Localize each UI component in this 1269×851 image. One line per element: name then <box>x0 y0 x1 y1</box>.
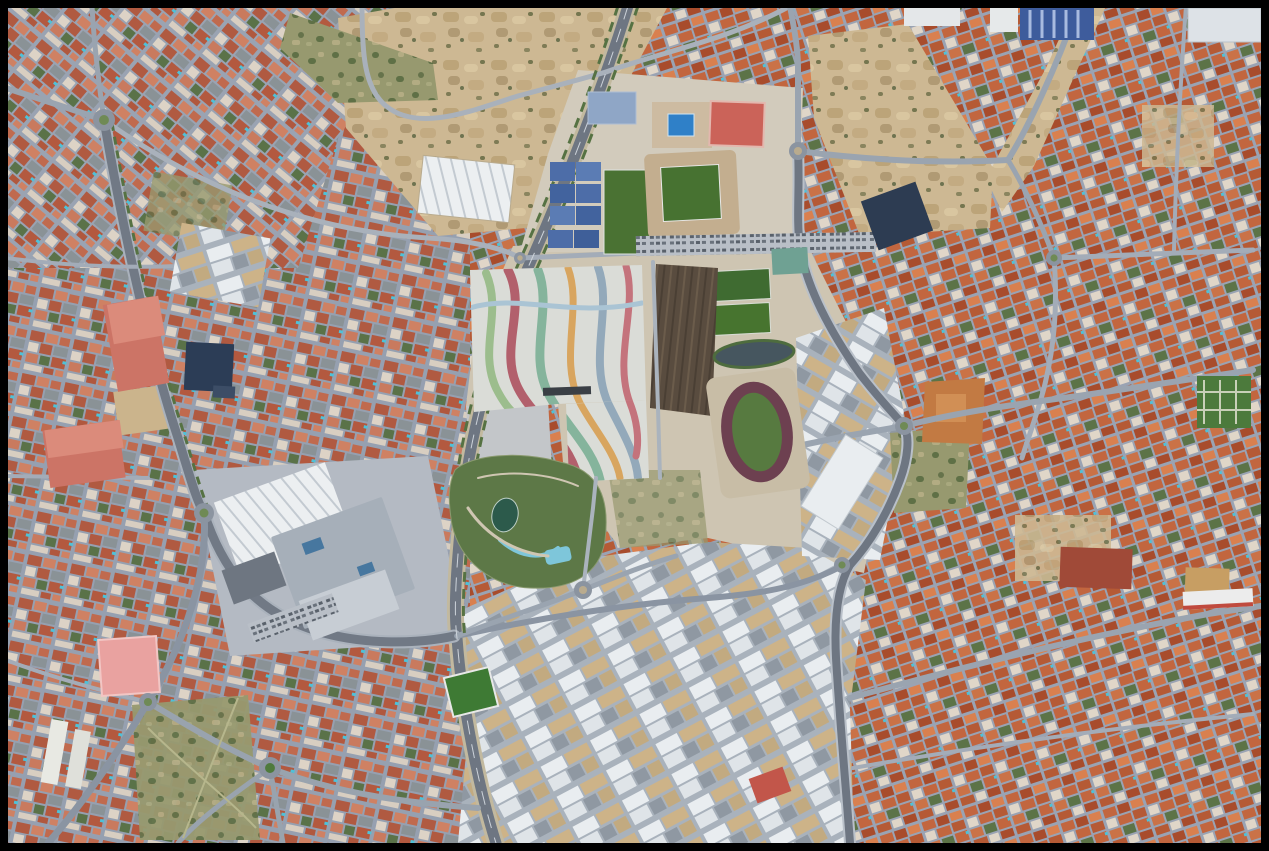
roundabout-plaza-corner-island <box>517 255 522 260</box>
roundabout-mall-island <box>200 509 209 518</box>
roundabout-southwest-green-island <box>265 763 275 773</box>
garden-park-east <box>1197 376 1251 428</box>
white-building-north <box>990 8 1018 32</box>
navy-building <box>184 342 234 392</box>
tennis-court-8 <box>574 230 599 248</box>
parking-row-north <box>636 232 876 256</box>
white-roof-northeast-corner <box>1188 8 1261 42</box>
pink-court-southwest <box>98 636 160 696</box>
tennis-court-2 <box>576 162 601 181</box>
school-red-roof <box>1059 547 1132 589</box>
navy-building-annex <box>213 385 236 398</box>
roundabout-industrial-island <box>838 561 845 568</box>
scrub-east-of-waterpark <box>608 470 708 548</box>
roundabout-southwest-island <box>144 698 152 706</box>
stadium-pitch <box>661 165 722 222</box>
training-pitch-1 <box>713 269 770 302</box>
roundabout-sports-east-island <box>794 147 802 155</box>
roundabout-waterpark-island <box>579 586 587 594</box>
village-cluster-in-sand <box>417 155 515 222</box>
vacant-field-southwest <box>132 695 260 840</box>
teal-roof-building <box>771 247 808 275</box>
tennis-court-6 <box>576 206 601 225</box>
tennis-court-5 <box>550 206 575 225</box>
swimming-pool <box>668 114 694 136</box>
white-building-top-center <box>904 8 960 26</box>
padel-courts-upper <box>588 92 636 124</box>
screenshot-frame <box>0 0 1269 851</box>
red-courts <box>709 101 765 147</box>
satellite-map-canvas[interactable] <box>8 8 1261 843</box>
tennis-court-1 <box>550 162 575 181</box>
tennis-court-3 <box>550 184 575 203</box>
industrial-park-south <box>455 542 866 843</box>
plaza-stage-building <box>543 386 591 396</box>
roundabout-northwest-island <box>99 115 109 125</box>
map-container <box>8 8 1261 843</box>
tennis-court-4 <box>576 184 601 203</box>
tennis-court-7 <box>548 230 573 248</box>
training-pitch-2 <box>713 303 770 336</box>
roundabout-east-island <box>900 422 908 430</box>
roundabout-northeast-island <box>1050 254 1057 261</box>
